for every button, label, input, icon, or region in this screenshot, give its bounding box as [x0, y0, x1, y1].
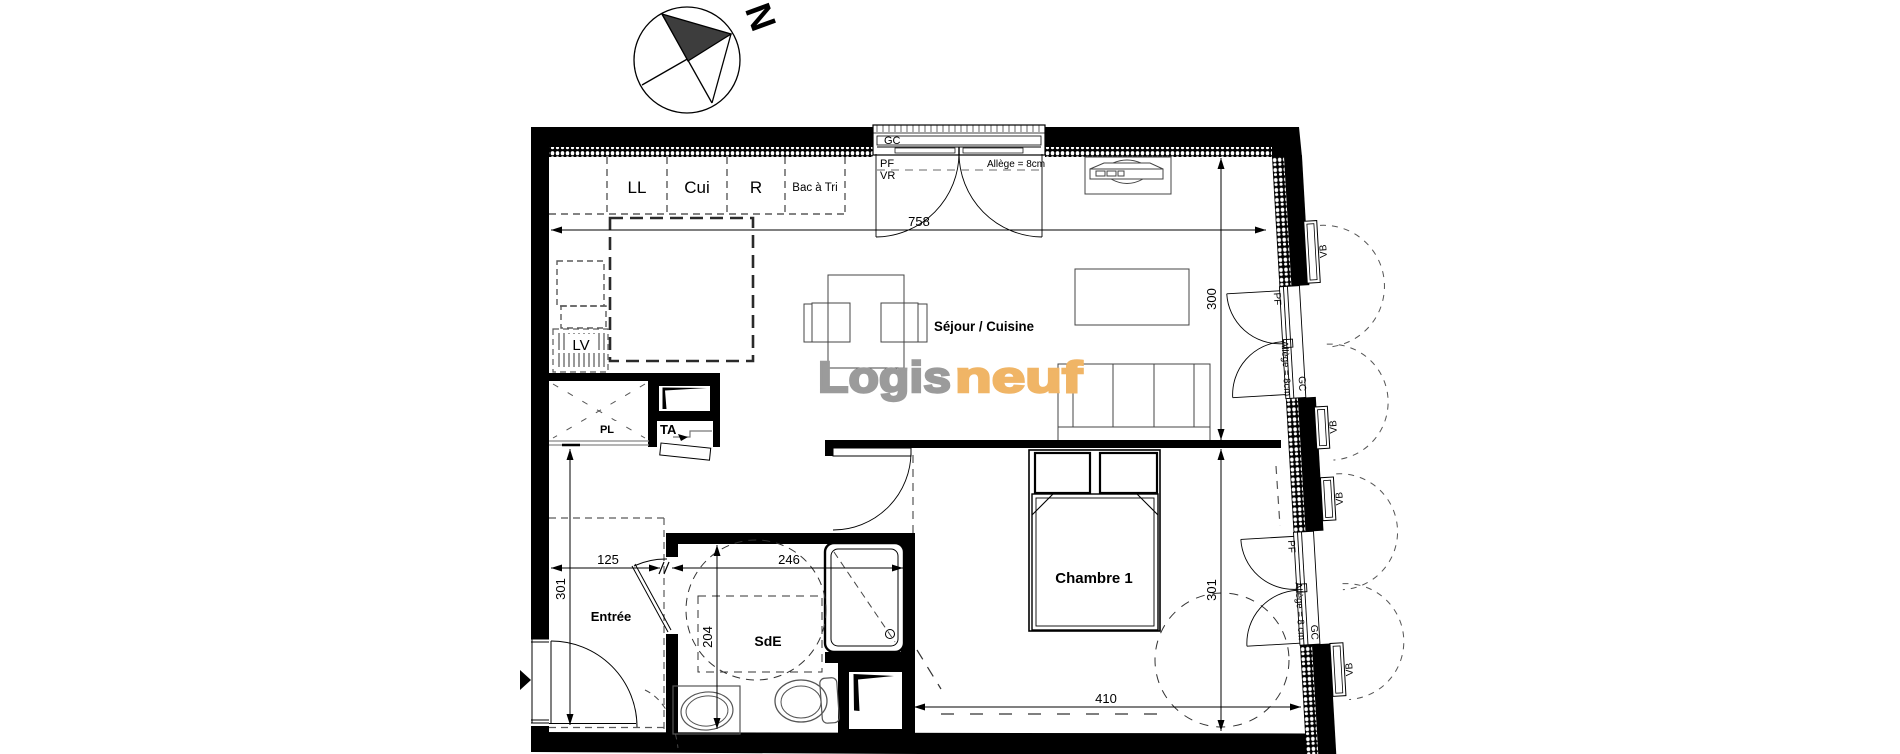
svg-text:125: 125: [597, 552, 619, 567]
svg-text:LL: LL: [628, 178, 647, 197]
svg-text:GC: GC: [1296, 376, 1308, 392]
svg-text:Bac à Tri: Bac à Tri: [792, 182, 837, 194]
svg-text:VB: VB: [1344, 662, 1356, 676]
svg-text:VB: VB: [1328, 420, 1340, 434]
svg-text:VB: VB: [1334, 491, 1346, 505]
svg-text:301: 301: [553, 578, 568, 600]
svg-text:PF: PF: [1271, 292, 1283, 305]
svg-text:Séjour / Cuisine: Séjour / Cuisine: [934, 318, 1034, 334]
svg-text:758: 758: [908, 214, 930, 229]
svg-text:PF: PF: [880, 158, 894, 170]
svg-text:246: 246: [778, 552, 800, 567]
svg-text:410: 410: [1095, 691, 1117, 706]
svg-text:Entrée: Entrée: [591, 609, 631, 624]
svg-text:PF: PF: [1285, 540, 1297, 553]
svg-text:PL: PL: [600, 424, 614, 436]
svg-text:Cui: Cui: [684, 178, 710, 197]
svg-text:GC: GC: [884, 135, 901, 147]
svg-text:301: 301: [1204, 579, 1219, 601]
svg-text:300: 300: [1204, 288, 1219, 310]
svg-text:VB: VB: [1318, 244, 1330, 258]
svg-text:Chambre 1: Chambre 1: [1055, 570, 1133, 587]
svg-text:Allège = 8cm: Allège = 8cm: [987, 159, 1045, 170]
svg-text:Logis: Logis: [818, 353, 951, 402]
svg-text:204: 204: [700, 626, 715, 648]
svg-text:SdE: SdE: [754, 633, 781, 649]
svg-text:TA: TA: [660, 422, 677, 437]
svg-text:VR: VR: [880, 170, 895, 182]
svg-text:R: R: [750, 178, 762, 197]
svg-text:GC: GC: [1308, 625, 1320, 641]
svg-text:LV: LV: [572, 337, 589, 354]
svg-text:neuf: neuf: [955, 353, 1082, 402]
